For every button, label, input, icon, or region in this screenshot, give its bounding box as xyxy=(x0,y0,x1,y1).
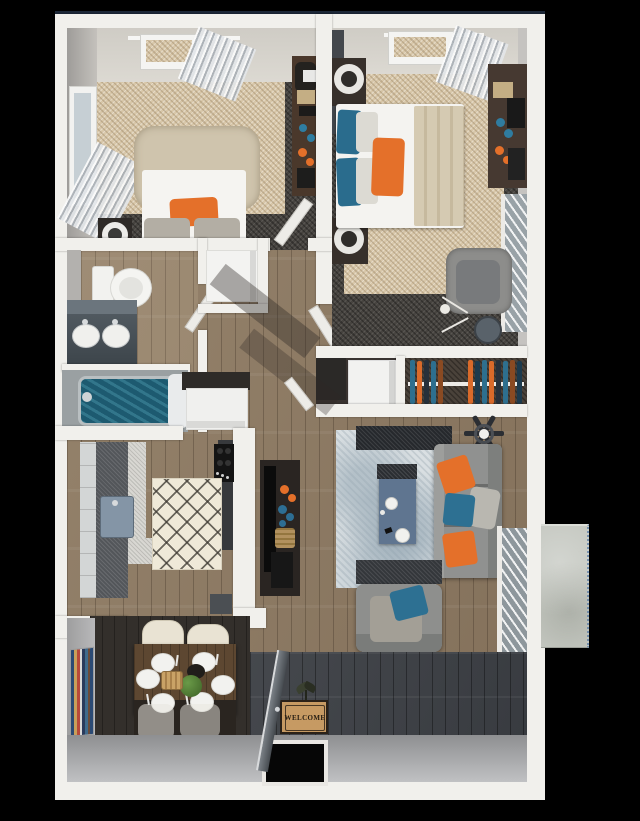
kitchen-faucet xyxy=(112,500,118,506)
floor-plan-render: WELCOME xyxy=(0,0,640,821)
sliding-door-frame xyxy=(497,526,502,656)
kitchen-cabinet-run xyxy=(80,442,96,598)
dinner-plate xyxy=(211,675,235,695)
coffee-table-top-edge xyxy=(377,464,417,479)
armchair-console-table xyxy=(356,560,442,584)
window-screen xyxy=(394,37,446,57)
console-decor-orange-1 xyxy=(280,485,289,494)
wall-art-striped xyxy=(70,647,94,738)
bedroom2-lamp-bottom xyxy=(334,224,364,254)
bathtub-faucet xyxy=(82,392,92,402)
console-basket xyxy=(275,528,295,548)
bedroom2-pillow-orange xyxy=(371,137,405,196)
clothes-item xyxy=(424,360,429,404)
clothes-item xyxy=(482,360,487,404)
entry-plant xyxy=(294,680,318,702)
wall-bedroom-divider xyxy=(316,14,332,304)
burner xyxy=(217,448,223,454)
dresser-books xyxy=(493,82,513,98)
clothes-item xyxy=(468,360,473,404)
bathtub-water xyxy=(78,376,176,426)
dresser-decor-blue-1 xyxy=(496,118,505,127)
coffee-dot xyxy=(380,510,385,515)
dresser-decor-orange-1 xyxy=(495,146,504,155)
wall-kitchen-north xyxy=(55,426,183,440)
welcome-mat-inner-border: WELCOME xyxy=(285,705,325,731)
vanity-sink-left xyxy=(72,324,100,348)
coffee-cup xyxy=(385,497,398,510)
sliding-door-glass xyxy=(500,528,527,654)
faucet-left xyxy=(82,319,88,325)
burner xyxy=(217,460,223,466)
bedroom2-side-table xyxy=(474,316,502,344)
toilet-bowl-inner xyxy=(119,277,143,299)
console-dark-items xyxy=(271,552,293,588)
clothes-item xyxy=(510,360,515,404)
sofa-pillow-blue xyxy=(442,493,475,528)
dresser-decor-blue-2 xyxy=(504,129,513,138)
desk-decor-blue-2 xyxy=(307,134,315,142)
balcony-slab xyxy=(541,524,589,648)
welcome-mat-label: WELCOME xyxy=(286,706,324,730)
console-decor-blue-3 xyxy=(279,520,286,527)
desk-papers xyxy=(303,70,316,82)
console-decor-blue-2 xyxy=(286,513,294,521)
fridge-front-face xyxy=(187,421,245,428)
centerpiece-plant xyxy=(180,675,202,697)
clothes-item xyxy=(475,361,480,404)
storage-white-box xyxy=(348,360,398,406)
desk-decor-orange-2 xyxy=(306,158,314,166)
console-decor-orange-2 xyxy=(288,494,296,502)
stove-knob xyxy=(216,472,219,475)
desk-books xyxy=(297,90,315,104)
desk-shelf xyxy=(299,106,317,116)
sofa-pillow-orange-bottom xyxy=(442,530,478,568)
refrigerator xyxy=(186,388,248,430)
desk-decor-dark xyxy=(297,168,315,188)
vanity-sink-right xyxy=(102,324,130,348)
kitchen-stove xyxy=(214,444,234,482)
wall-closet-row-north xyxy=(316,346,527,358)
vanity-mirror-reflection xyxy=(67,300,137,314)
dinner-plate xyxy=(136,669,160,689)
sliding-door-blinds xyxy=(500,528,527,654)
clothes-item xyxy=(417,361,422,404)
stove-knob xyxy=(221,474,224,477)
clothes-item xyxy=(438,360,443,404)
desk-decor-blue-1 xyxy=(299,124,307,132)
faucet-right xyxy=(112,319,118,325)
stove-knob xyxy=(226,476,229,479)
clothes-item xyxy=(503,361,508,404)
console-decor-blue-1 xyxy=(278,505,287,514)
kitchen-rug xyxy=(152,478,222,570)
clothes-item xyxy=(431,361,436,404)
bedroom2-floor-lamp xyxy=(436,298,470,344)
wall-kitchen-east xyxy=(233,428,255,614)
lamp-leg xyxy=(441,317,468,333)
bedroom2-lamp-top xyxy=(334,64,364,94)
kitchen-bin xyxy=(210,594,232,614)
box-side-face xyxy=(389,361,395,405)
lamp-bulb xyxy=(440,304,450,314)
bedroom2-folded-blanket xyxy=(414,106,464,226)
welcome-mat: WELCOME xyxy=(280,700,328,734)
clothes-item xyxy=(517,361,522,404)
burner xyxy=(225,448,231,454)
coffee-plate xyxy=(395,528,410,543)
wall-bedroom1-south-b xyxy=(308,238,332,251)
clothes-item xyxy=(489,361,494,404)
dining-chair-far xyxy=(180,704,220,738)
wall-closet-divider xyxy=(396,356,405,406)
dresser-decor-dark xyxy=(508,148,525,180)
dresser-laptop xyxy=(507,98,525,128)
burner xyxy=(225,460,231,466)
bread-basket xyxy=(161,671,183,690)
clothes-item xyxy=(410,360,415,404)
desk-decor-orange-1 xyxy=(298,148,307,157)
fan-hub xyxy=(479,429,489,439)
clothes-item xyxy=(496,360,501,404)
